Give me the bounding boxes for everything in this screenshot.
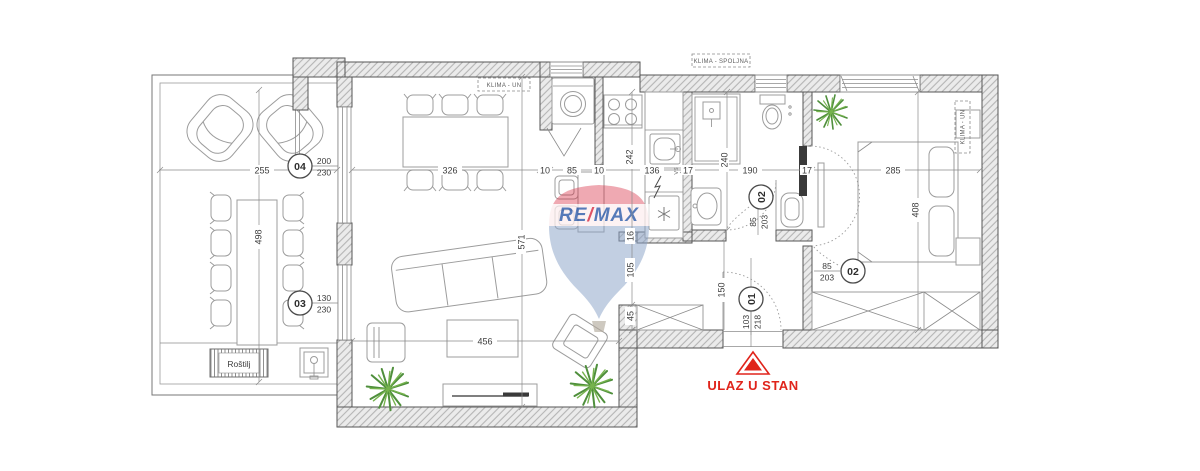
terrace-chair bbox=[210, 227, 231, 259]
stove bbox=[604, 95, 642, 128]
dining-chair bbox=[404, 94, 436, 115]
glass-door-terrace bbox=[338, 265, 351, 340]
plant bbox=[571, 364, 614, 408]
terrace-chair bbox=[210, 192, 231, 224]
washing-machine bbox=[552, 78, 594, 124]
dim-living-lower-width: 456 bbox=[477, 337, 492, 347]
terrace: Roštilj bbox=[152, 75, 345, 395]
svg-text:203: 203 bbox=[820, 273, 834, 283]
dining-chair bbox=[474, 94, 506, 115]
door-label-02-bedroom: 85 203 02 bbox=[813, 246, 865, 283]
pillow bbox=[929, 206, 954, 256]
dim-bath-width: 190 bbox=[742, 166, 757, 176]
svg-text:498: 498 bbox=[254, 229, 264, 244]
terrace-chair bbox=[210, 297, 231, 329]
dim-niche-wall-right: 10 bbox=[594, 166, 604, 176]
svg-text:45: 45 bbox=[626, 311, 636, 321]
armchair bbox=[367, 323, 405, 362]
floor-plan-page: Roštilj bbox=[0, 0, 1200, 471]
dining-chair bbox=[439, 94, 471, 115]
svg-text:571: 571 bbox=[517, 234, 527, 249]
svg-text:KLIMA - UN: KLIMA - UN bbox=[487, 83, 522, 89]
terrace-chair bbox=[283, 262, 304, 294]
glass-door-terrace bbox=[338, 107, 351, 223]
dim-hall-wall-segment: 16 bbox=[625, 228, 636, 244]
dining-chair bbox=[404, 170, 436, 191]
window bbox=[550, 62, 583, 77]
terrace-chair bbox=[283, 227, 304, 259]
bed bbox=[858, 142, 958, 262]
dim-hall-opening: 105 bbox=[625, 258, 636, 282]
entrance-label: ULAZ U STAN bbox=[707, 378, 798, 393]
terrace-chair bbox=[210, 262, 231, 294]
window bbox=[840, 75, 920, 92]
klima-label-outdoor: KLIMA - SPOLJNA bbox=[692, 54, 750, 67]
plant bbox=[814, 94, 848, 129]
pillow bbox=[929, 147, 954, 197]
svg-text:01: 01 bbox=[746, 293, 758, 305]
window bbox=[755, 75, 787, 92]
svg-text:408: 408 bbox=[911, 202, 921, 217]
bedroom bbox=[799, 94, 980, 330]
dim-terrace-depth: 498 bbox=[253, 225, 264, 249]
svg-text:150: 150 bbox=[717, 282, 727, 297]
entrance-marker: ULAZ U STAN bbox=[707, 352, 798, 393]
svg-text:VS: VS bbox=[674, 167, 680, 175]
svg-text:02: 02 bbox=[847, 266, 859, 278]
svg-text:200: 200 bbox=[317, 156, 331, 166]
svg-text:16: 16 bbox=[626, 231, 636, 241]
svg-text:242: 242 bbox=[625, 149, 635, 164]
dim-terrace-width: 255 bbox=[254, 166, 269, 176]
tv-stand bbox=[443, 384, 537, 406]
dim-kitchen-depth: 242 bbox=[624, 145, 635, 169]
svg-text:240: 240 bbox=[720, 152, 730, 167]
grill-label: Roštilj bbox=[227, 359, 250, 369]
dim-wall-bath-bedroom: 17 bbox=[802, 166, 812, 176]
svg-text:230: 230 bbox=[317, 168, 331, 178]
dim-niche-wall-left: 10 bbox=[540, 166, 550, 176]
toilet bbox=[760, 95, 791, 129]
svg-text:85: 85 bbox=[748, 217, 758, 227]
terrace-chair bbox=[283, 192, 304, 224]
terrace-sink bbox=[300, 348, 328, 379]
svg-text:KLIMA - UN: KLIMA - UN bbox=[961, 110, 967, 145]
svg-text:85: 85 bbox=[822, 261, 832, 271]
dim-bath-depth: 240 bbox=[719, 148, 730, 172]
svg-text:04: 04 bbox=[294, 161, 306, 173]
dining-chair bbox=[474, 170, 506, 191]
svg-text:103: 103 bbox=[741, 315, 751, 329]
floor-plan: Roštilj bbox=[0, 0, 1200, 471]
dim-kitchen-width: 136 bbox=[644, 166, 659, 176]
dim-living-depth: 571 bbox=[516, 230, 527, 254]
dim-bedroom-depth: 408 bbox=[910, 198, 921, 222]
ventilation-hood bbox=[547, 128, 581, 156]
dim-living-width: 326 bbox=[442, 166, 457, 176]
bathroom bbox=[691, 94, 803, 230]
nightstand bbox=[956, 238, 980, 265]
ventilation-label: VS bbox=[674, 167, 680, 175]
svg-text:105: 105 bbox=[626, 262, 636, 277]
desk-shelf bbox=[818, 163, 824, 227]
dim-hall-closet-depth: 45 bbox=[625, 307, 636, 325]
svg-text:218: 218 bbox=[753, 315, 763, 329]
dim-wall-kitchen-bath: 17 bbox=[683, 166, 693, 176]
dining-table bbox=[403, 117, 508, 167]
hall-closet bbox=[637, 305, 703, 330]
svg-text:203: 203 bbox=[760, 215, 770, 229]
door-label-01: 103 218 01 bbox=[739, 287, 763, 335]
shower bbox=[692, 94, 740, 164]
washbasin bbox=[691, 188, 721, 225]
svg-text:130: 130 bbox=[317, 293, 331, 303]
wardrobe bbox=[812, 292, 980, 330]
dim-bedroom-width: 285 bbox=[885, 166, 900, 176]
svg-text:KLIMA - SPOLJNA: KLIMA - SPOLJNA bbox=[694, 59, 749, 65]
plant bbox=[367, 367, 410, 411]
terrace-table bbox=[237, 200, 277, 345]
svg-text:230: 230 bbox=[317, 305, 331, 315]
dim-hall-width: 150 bbox=[716, 278, 727, 302]
logo-re: RE bbox=[559, 205, 588, 226]
bidet bbox=[781, 193, 803, 227]
svg-text:03: 03 bbox=[294, 298, 306, 310]
logo-max: MAX bbox=[594, 205, 640, 226]
svg-text:02: 02 bbox=[756, 191, 768, 203]
dim-washing-niche: 85 bbox=[567, 166, 577, 176]
remax-logo-text: RE/MAX bbox=[559, 205, 639, 226]
